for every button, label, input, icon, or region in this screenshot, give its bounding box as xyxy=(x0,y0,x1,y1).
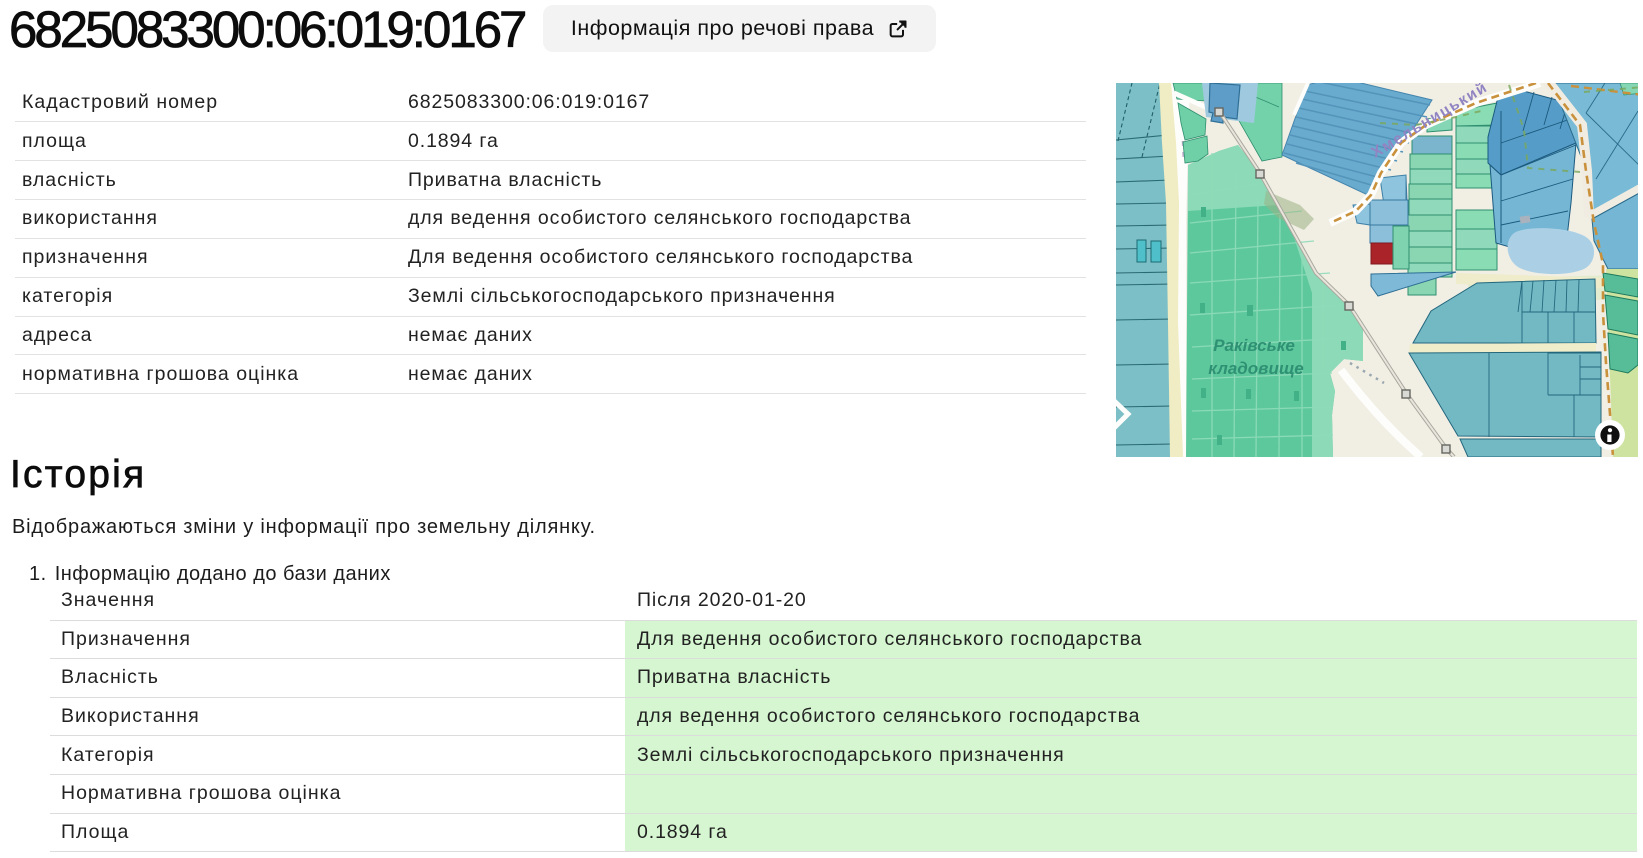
svg-text:Раківське: Раківське xyxy=(1213,336,1295,355)
svg-text:кладовище: кладовище xyxy=(1208,359,1304,378)
